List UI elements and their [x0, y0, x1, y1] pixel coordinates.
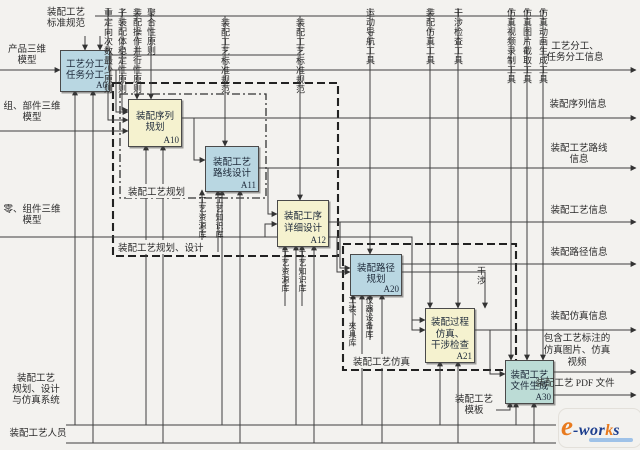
box-code: A11	[241, 180, 256, 192]
activity-box-a11: 装配工艺 路线设计 A11	[205, 146, 259, 192]
box-title: 详细设计	[284, 224, 322, 236]
group-label-planning-design: 装配工艺规划、设计	[116, 240, 206, 254]
box-title: 装配路径	[357, 264, 395, 276]
group-label-simulation: 装配工艺仿真	[351, 354, 412, 368]
output-process-info: 装配工艺信息	[526, 206, 632, 217]
input-part-model: 零、组件三维 模型	[0, 205, 64, 227]
control-interference-check-tool: 干涉检查工具	[451, 8, 464, 65]
control-principle-reorientation: 重定向次数最少原则	[101, 8, 114, 94]
logo-underline-bar	[589, 438, 633, 442]
mechanism-system: 装配工艺 规划、设计 与仿真系统	[2, 374, 70, 407]
control-principle-aggregation: 聚合性原则	[144, 8, 157, 56]
feedback-interference: 干涉	[474, 266, 487, 285]
idef0-diagram: 工艺分工 任务分工 A0 装配序列 规划 A10 装配工艺 路线设计 A11 装…	[0, 0, 640, 450]
box-title: 装配工艺	[213, 158, 251, 170]
input-product-model: 产品三维 模型	[0, 45, 54, 67]
control-assembly-simulation-tool: 装配仿真工具	[423, 8, 436, 65]
control-standard-spec-3: 装配工艺标准规范	[293, 18, 306, 94]
box-title: 装配序列	[136, 112, 174, 124]
output-sequence-info: 装配序列信息	[522, 100, 634, 111]
control-motion-navigation-tool: 运动导航工具	[363, 8, 376, 65]
resource-equipment-lib: 仪器设备库	[363, 296, 375, 339]
resource-process-resource-lib-1: 工艺资源库	[196, 196, 208, 239]
resource-process-knowledge-lib-2: 工艺知识库	[296, 250, 308, 293]
box-code: A21	[457, 351, 473, 363]
output-task-division-info: 工艺分工、 任务分工信息	[514, 42, 636, 64]
output-pdf-file: 装配工艺 PDF 文件	[512, 379, 638, 390]
activity-box-a21: 装配过程 仿真、 干涉检查 A21	[425, 308, 475, 363]
box-code: A30	[536, 392, 552, 404]
resource-process-knowledge-lib-1: 工艺知识库	[213, 196, 225, 239]
output-simulation-info: 装配仿真信息	[526, 312, 632, 323]
box-code: A20	[384, 284, 400, 296]
box-title: 规划	[145, 123, 164, 135]
resource-fixture-lib: 工装、夹具库	[346, 296, 358, 347]
output-route-info: 装配工艺路线 信息	[526, 144, 632, 166]
activity-box-a20: 装配路径 规划 A20	[350, 254, 402, 296]
box-title: 装配工序	[284, 212, 322, 224]
output-sim-media: 包含工艺标注的 仿真图片、仿真 视频	[518, 333, 636, 369]
eworks-logo: e-works	[558, 408, 640, 448]
control-standard-spec-2: 装配工艺标准规范	[218, 18, 231, 94]
box-code: A10	[164, 135, 180, 147]
box-code: A12	[311, 235, 327, 247]
activity-box-a10: 装配序列 规划 A10	[128, 99, 182, 147]
mechanism-template: 装配工艺 模板	[450, 395, 498, 417]
control-principle-parallelism: 装配操作并行性原则	[130, 8, 143, 94]
activity-box-a12: 装配工序 详细设计 A12	[277, 200, 329, 247]
resource-process-resource-lib-2: 工艺资源库	[279, 250, 291, 293]
control-standard-spec: 装配工艺 标准规范	[36, 8, 96, 30]
input-assembly-model: 组、部件三维 模型	[0, 102, 64, 124]
control-principle-stability: 子装配体稳定性原则	[115, 8, 128, 94]
box-title: 工艺分工	[66, 60, 104, 72]
mechanism-personnel: 装配工艺人员	[2, 429, 74, 440]
box-title: 仿真、	[436, 330, 465, 342]
logo-letter-e: e	[561, 415, 573, 437]
box-title: 装配过程	[431, 318, 469, 330]
output-path-info: 装配路径信息	[526, 248, 632, 259]
group-label-planning: 装配工艺规划	[126, 184, 187, 198]
